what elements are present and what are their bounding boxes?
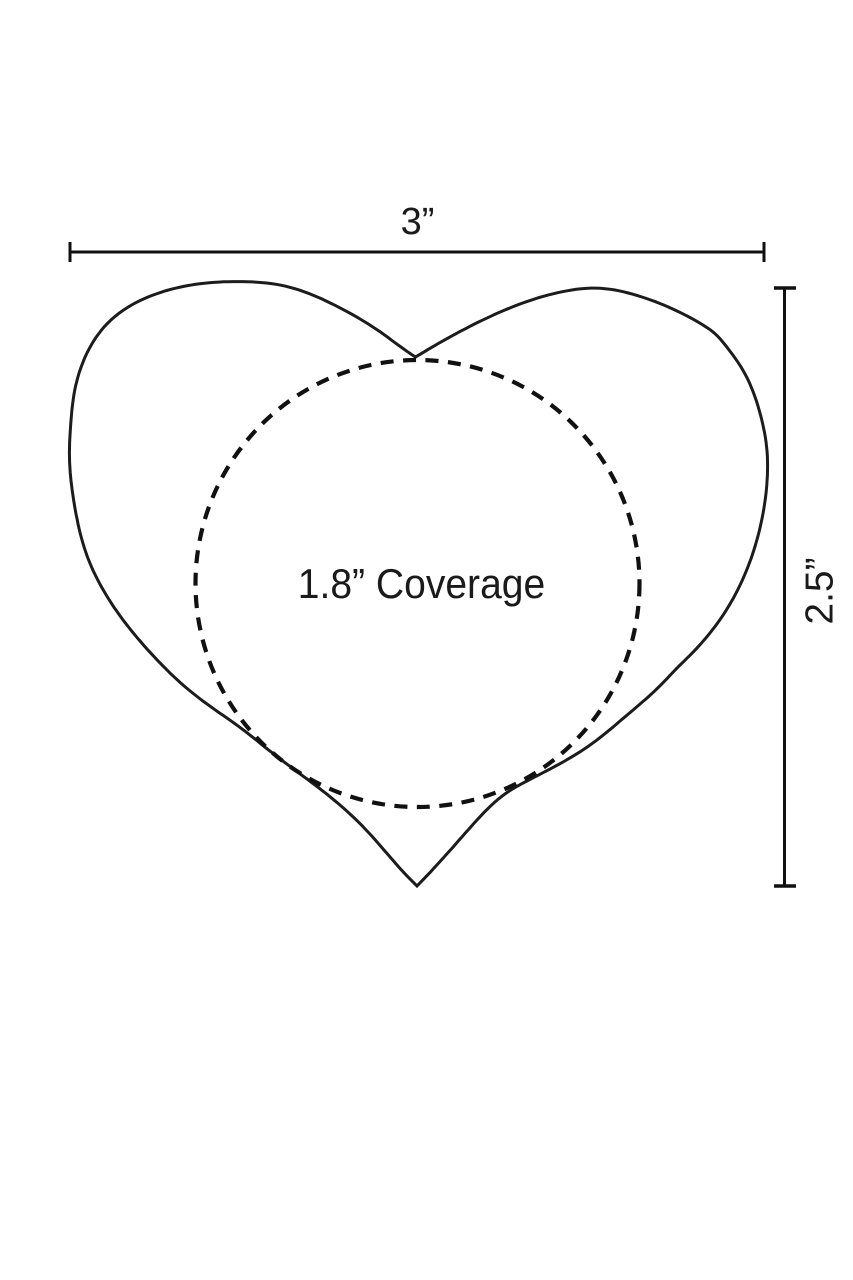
svg-text:3”: 3” xyxy=(401,201,435,243)
svg-text:1.8” Coverage: 1.8” Coverage xyxy=(298,560,545,608)
svg-text:2.5”: 2.5” xyxy=(799,557,842,624)
